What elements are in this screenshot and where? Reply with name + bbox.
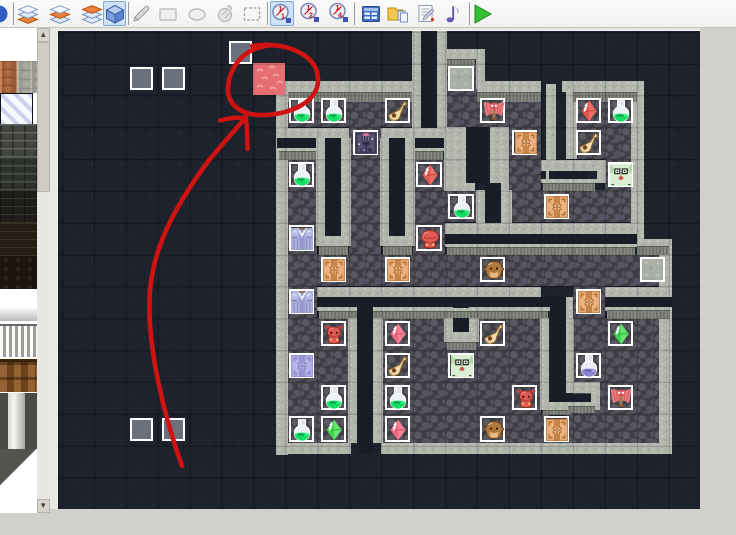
svg-text:1: 1 bbox=[280, 12, 284, 21]
svg-text:2: 2 bbox=[308, 11, 312, 20]
